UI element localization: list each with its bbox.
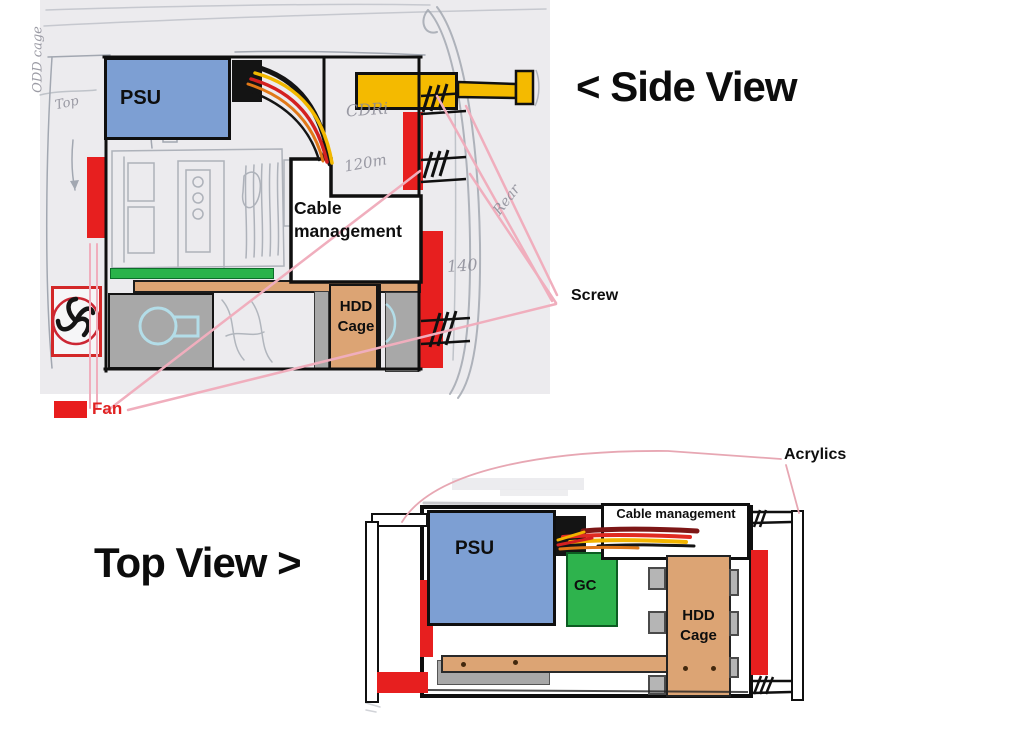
handwritten-odd-cage-note: ODD cage: [31, 0, 46, 126]
fan-legend-swatch: [54, 401, 87, 418]
top-cables: [558, 529, 697, 549]
fan-blades-icon: [53, 298, 99, 344]
top-psu-label: PSU: [455, 538, 494, 560]
screw-hatch-bottom: [421, 311, 470, 347]
top-hdd-cage-label: HDD Cage: [666, 606, 731, 646]
fan-label: Fan: [92, 399, 122, 419]
handwritten-cdri-note: CDRi: [345, 99, 388, 121]
acrylics-label: Acrylics: [784, 446, 846, 464]
acrylic-screw-hatches: [752, 510, 791, 694]
screw-hatch-middle: [421, 150, 466, 182]
handwritten-140mm-note: 140: [446, 255, 478, 276]
side-psu-label: PSU: [120, 87, 161, 110]
top-view-heading: Top View >: [94, 539, 301, 587]
odd-tray: [458, 70, 539, 106]
top-cable-management-label: Cable management: [602, 506, 750, 521]
screw-label: Screw: [571, 287, 618, 305]
side-hdd-cage-label: HDD Cage: [331, 297, 381, 337]
side-view-heading: < Side View: [576, 63, 797, 111]
side-cable-management-label: Cable management: [294, 197, 424, 243]
sketch-page: ODD cage Top PSU CDRi 120m 140 Rear Cabl…: [0, 0, 1024, 729]
top-gc-label: GC: [574, 577, 597, 594]
psu-cables: [246, 66, 332, 164]
top-case-inner-bottom: [428, 690, 748, 692]
